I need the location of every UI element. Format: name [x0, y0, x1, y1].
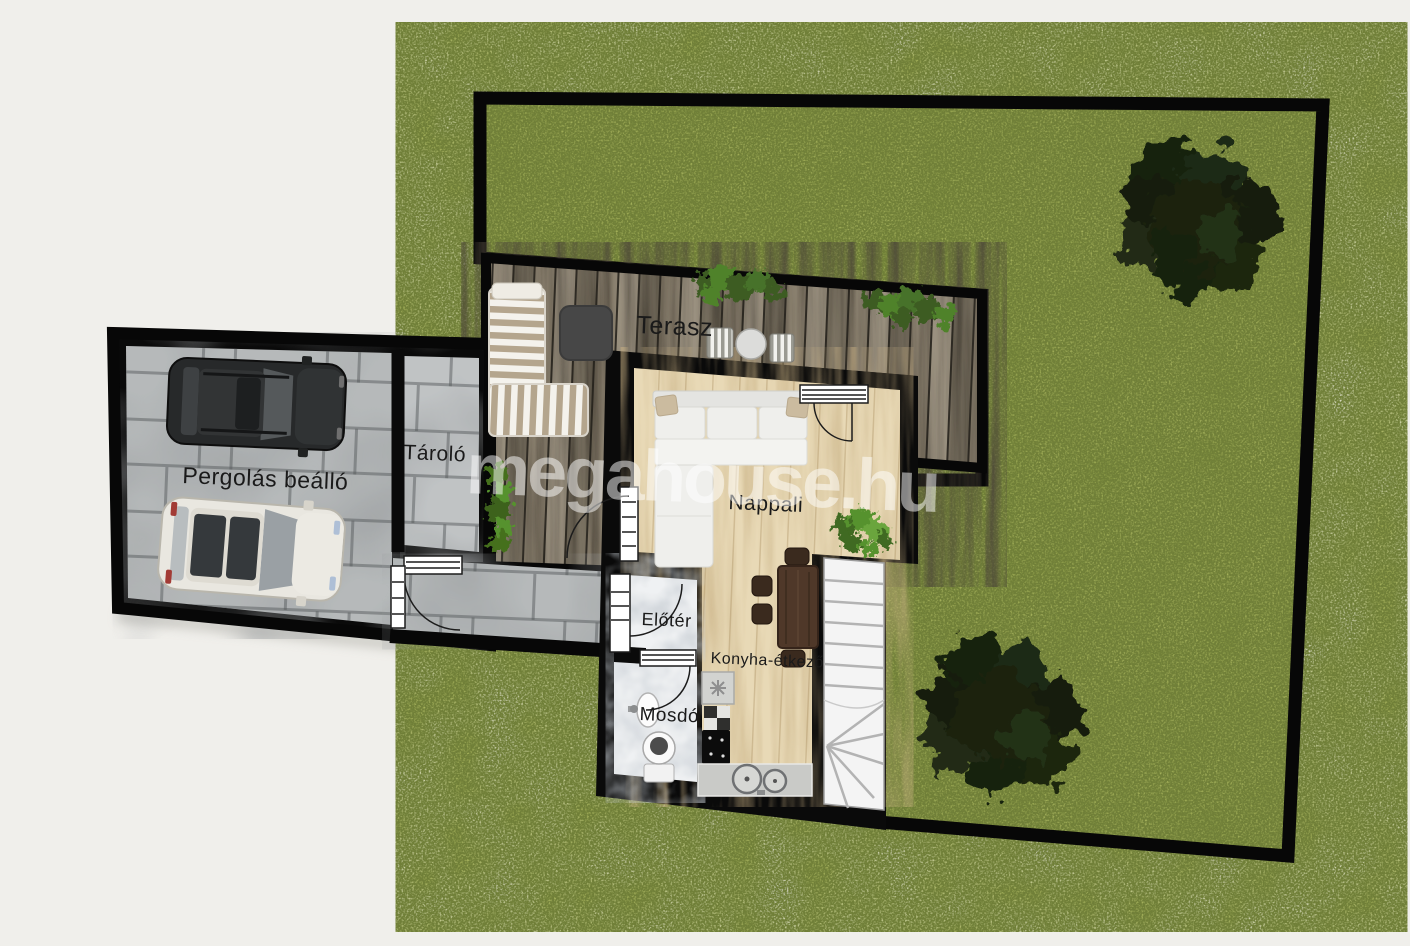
room-label-terrace: Terasz	[636, 311, 714, 343]
room-label-storage: Tároló	[403, 441, 466, 467]
room-label-entry-hall: Előtér	[641, 609, 692, 632]
kitchen-sink-icon	[698, 764, 812, 796]
stairs-icon	[824, 558, 884, 810]
floorplan-stage: Terasz Nappali Konyha-étkező Előtér Mosd…	[0, 0, 1410, 946]
carport-window-icon	[391, 566, 405, 628]
suv-car-icon	[166, 350, 347, 459]
room-label-washroom: Mosdó	[639, 704, 699, 728]
firepit-table-icon	[560, 306, 612, 360]
tile-strip	[704, 706, 730, 730]
toilet-icon	[643, 732, 675, 782]
cooktop-icon	[702, 730, 730, 764]
